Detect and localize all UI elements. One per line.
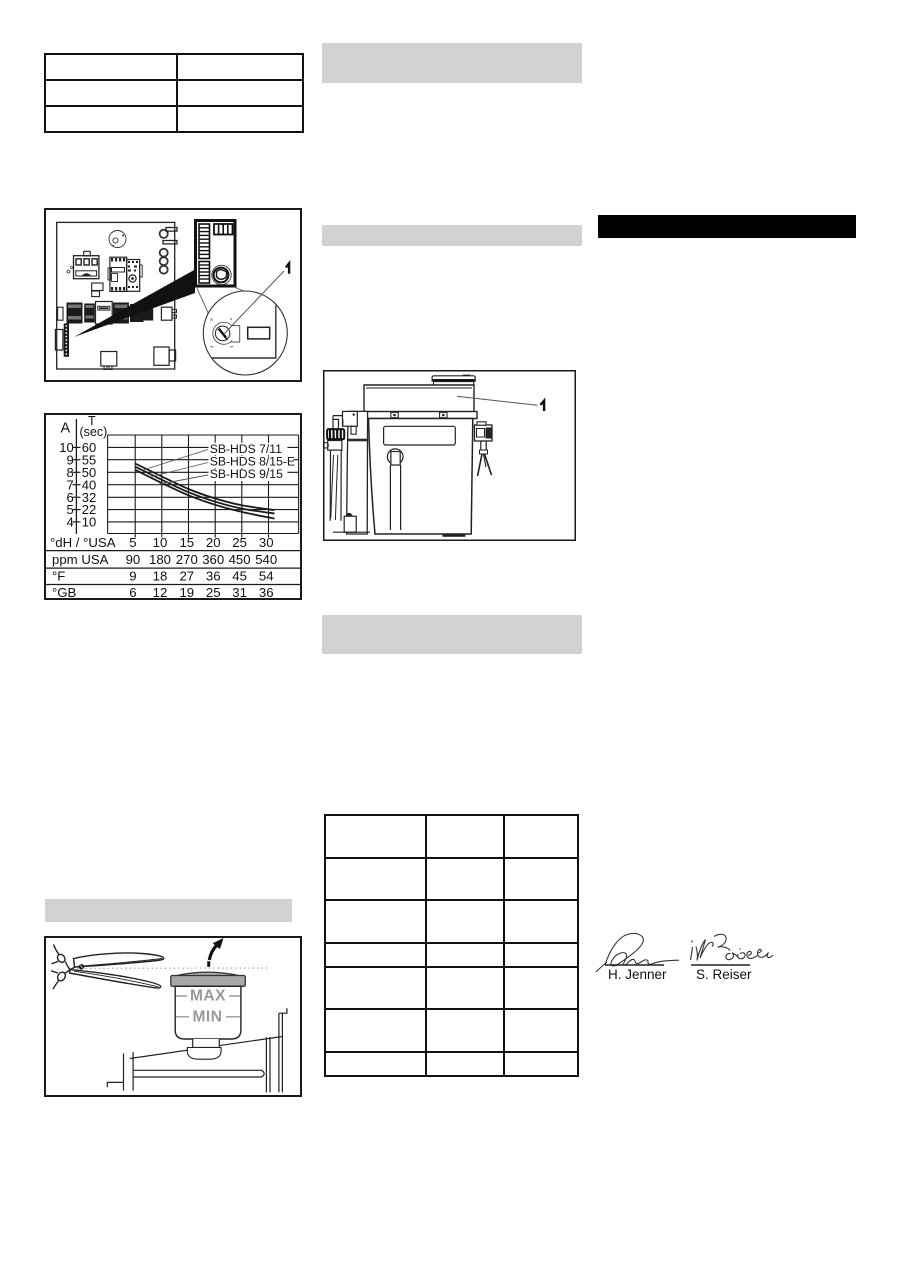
- svg-text:ppm USA: ppm USA: [52, 552, 109, 567]
- svg-text:10: 10: [153, 535, 168, 550]
- svg-text:270: 270: [176, 552, 198, 567]
- svg-text:MIN: MIN: [193, 1009, 223, 1026]
- svg-text:180: 180: [149, 552, 171, 567]
- svg-text:A: A: [61, 421, 71, 437]
- svg-text:10: 10: [82, 515, 96, 530]
- svg-text:20: 20: [206, 535, 221, 550]
- svg-text:S. Reiser: S. Reiser: [696, 967, 752, 982]
- svg-text:90: 90: [126, 552, 141, 567]
- svg-text:9: 9: [129, 569, 136, 584]
- svg-text:540: 540: [255, 552, 277, 567]
- svg-text:36: 36: [259, 585, 274, 600]
- svg-text:12: 12: [153, 585, 168, 600]
- svg-text:5: 5: [129, 535, 136, 550]
- svg-text:(sec): (sec): [80, 425, 108, 439]
- svg-text:°dH / °USA: °dH / °USA: [50, 535, 116, 550]
- svg-text:25: 25: [232, 535, 247, 550]
- svg-text:36: 36: [206, 569, 221, 584]
- svg-text:°F: °F: [52, 569, 65, 584]
- svg-text:450: 450: [229, 552, 251, 567]
- svg-text:6: 6: [129, 585, 136, 600]
- svg-text:360: 360: [202, 552, 224, 567]
- svg-text:27: 27: [179, 569, 194, 584]
- svg-text:18: 18: [153, 569, 168, 584]
- svg-text:H. Jenner: H. Jenner: [608, 967, 667, 982]
- svg-text:45: 45: [232, 569, 247, 584]
- svg-text:31: 31: [232, 585, 247, 600]
- svg-text:15: 15: [179, 535, 194, 550]
- svg-text:MAX: MAX: [190, 988, 226, 1005]
- svg-text:19: 19: [179, 585, 194, 600]
- svg-text:30: 30: [259, 535, 274, 550]
- svg-text:25: 25: [206, 585, 221, 600]
- svg-text:54: 54: [259, 569, 274, 584]
- svg-text:SB-HDS 9/15: SB-HDS 9/15: [210, 467, 283, 481]
- svg-text:°GB: °GB: [52, 585, 77, 600]
- svg-text:4: 4: [66, 515, 73, 530]
